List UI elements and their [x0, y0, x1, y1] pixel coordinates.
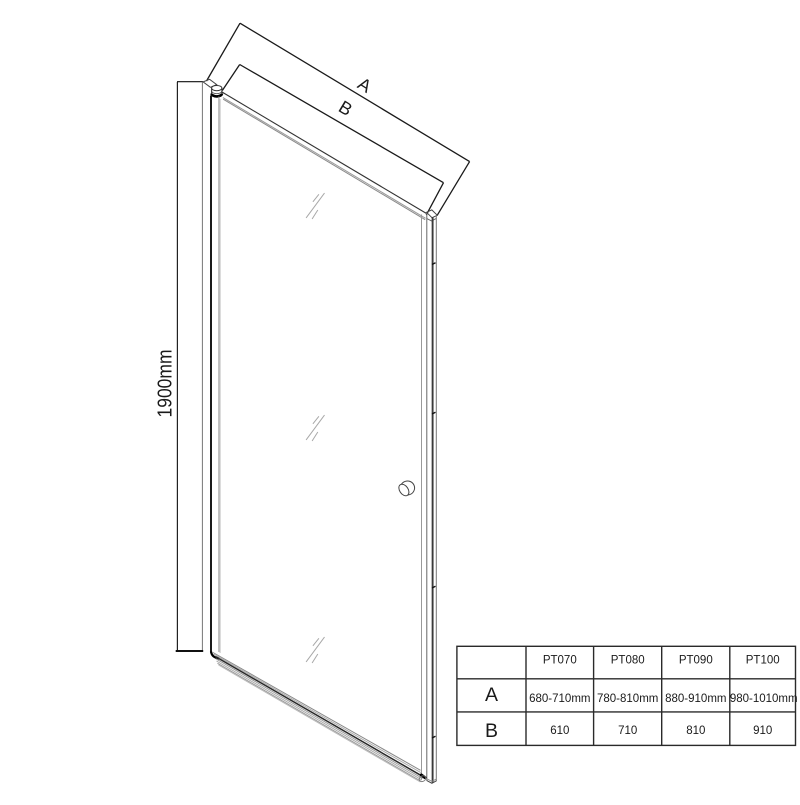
svg-text:B: B — [485, 720, 498, 742]
svg-text:PT080: PT080 — [611, 655, 645, 667]
svg-text:PT100: PT100 — [746, 655, 780, 667]
svg-text:A: A — [485, 684, 498, 706]
svg-text:610: 610 — [550, 725, 569, 737]
svg-text:PT090: PT090 — [679, 655, 713, 667]
svg-text:980-1010mm: 980-1010mm — [730, 693, 798, 705]
svg-text:PT070: PT070 — [543, 655, 577, 667]
svg-text:710: 710 — [618, 725, 637, 737]
svg-text:880-910mm: 880-910mm — [665, 693, 726, 705]
svg-text:810: 810 — [686, 725, 705, 737]
svg-text:910: 910 — [753, 725, 772, 737]
svg-text:680-710mm: 680-710mm — [529, 693, 590, 705]
svg-text:780-810mm: 780-810mm — [597, 693, 658, 705]
svg-text:1900mm: 1900mm — [154, 350, 176, 418]
